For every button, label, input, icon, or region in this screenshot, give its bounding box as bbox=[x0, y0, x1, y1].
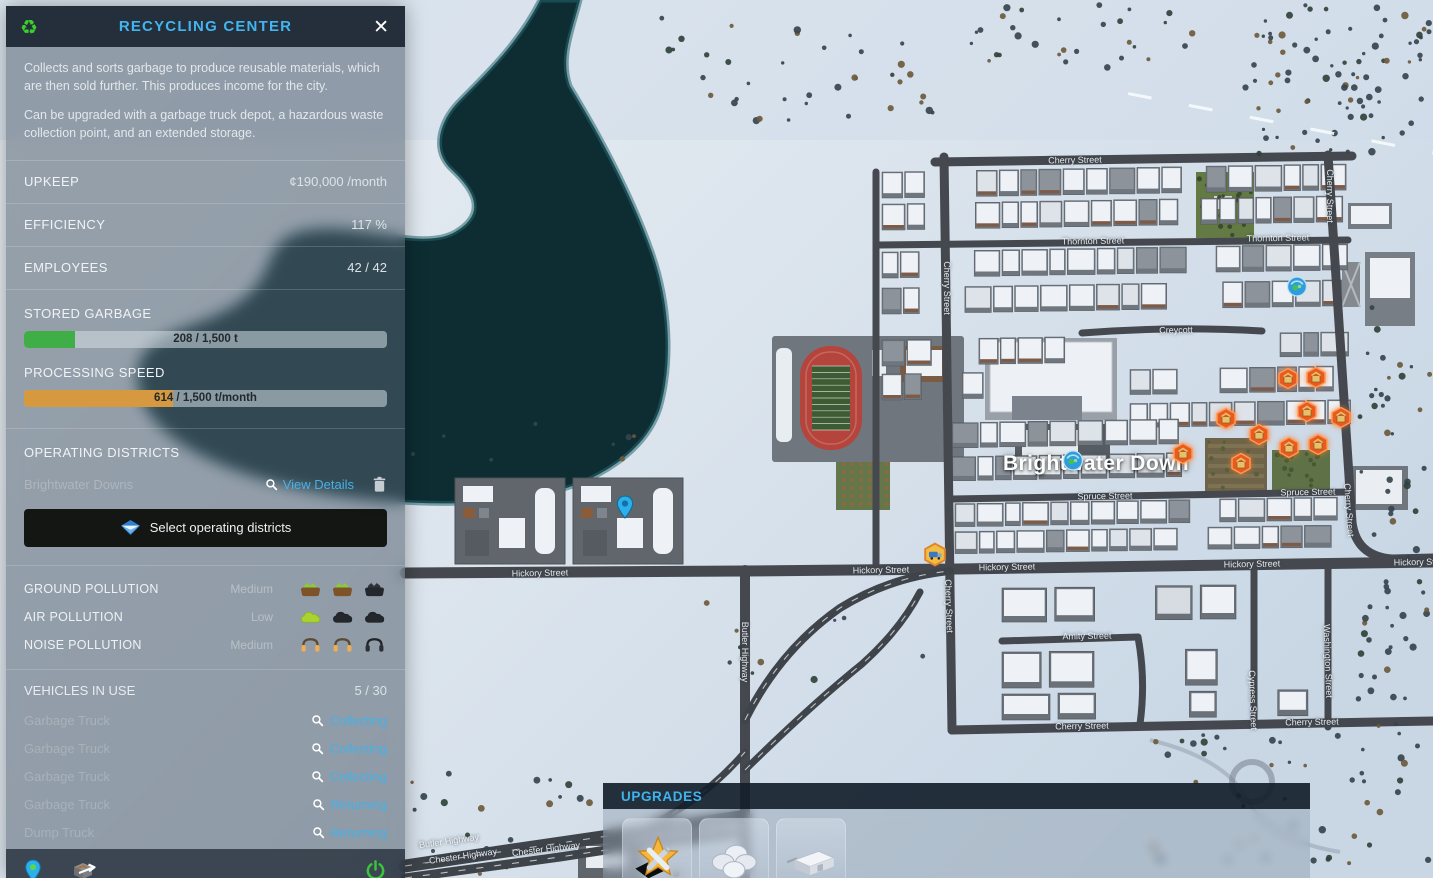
relocate-building-button[interactable] bbox=[70, 859, 97, 878]
stored-garbage-bar: 208 / 1,500 t bbox=[24, 331, 387, 348]
stat-label: UPKEEP bbox=[24, 174, 79, 189]
pollution-level: Medium bbox=[230, 582, 273, 596]
upgrade-tile-storage[interactable] bbox=[776, 818, 846, 878]
pollution-level: Low bbox=[251, 610, 273, 624]
districts-heading: OPERATING DISTRICTS bbox=[24, 445, 387, 460]
storage-section: STORED GARBAGE 208 / 1,500 t PROCESSING … bbox=[6, 289, 405, 428]
stat-row-efficiency: EFFICIENCY 117 % bbox=[6, 203, 405, 246]
vehicle-status: Collecting bbox=[330, 769, 387, 784]
vehicle-name: Garbage Truck bbox=[24, 713, 110, 728]
power-icon bbox=[364, 859, 387, 878]
description-paragraph-1: Collects and sorts garbage to produce re… bbox=[24, 59, 387, 95]
upgrade-tile-domes[interactable] bbox=[699, 818, 769, 878]
view-details-label: View Details bbox=[283, 477, 354, 492]
noise-pollution-row: NOISE POLLUTION Medium bbox=[24, 631, 387, 659]
stored-garbage-label: STORED GARBAGE bbox=[24, 306, 387, 321]
recycling-center-panel: ♻ RECYCLING CENTER ✕ Collects and sorts … bbox=[6, 6, 405, 878]
vehicles-heading: VEHICLES IN USE bbox=[24, 683, 135, 698]
processing-speed-label: PROCESSING SPEED bbox=[24, 365, 387, 380]
vehicle-status: Returning bbox=[331, 825, 387, 840]
magnifier-glyph bbox=[312, 826, 325, 839]
map-pin-icon bbox=[24, 859, 42, 878]
vehicle-row: Garbage Truck Collecting bbox=[6, 707, 405, 735]
stat-value: ¢190,000 /month bbox=[289, 174, 387, 189]
vehicle-name: Garbage Truck bbox=[24, 797, 110, 812]
select-districts-button[interactable]: Select operating districts bbox=[24, 509, 387, 547]
relocate-crate-icon bbox=[70, 859, 97, 878]
vehicle-name: Dump Truck bbox=[24, 825, 94, 840]
locate-building-button[interactable] bbox=[24, 859, 42, 878]
panel-header: ♻ RECYCLING CENTER ✕ bbox=[6, 6, 405, 47]
vehicle-name: Garbage Truck bbox=[24, 741, 110, 756]
pollution-level: Medium bbox=[230, 638, 273, 652]
vehicle-status: Collecting bbox=[330, 741, 387, 756]
air-pollution-icons bbox=[287, 607, 387, 626]
vehicles-count: 5 / 30 bbox=[354, 683, 387, 698]
pollution-label: NOISE POLLUTION bbox=[24, 638, 230, 652]
stat-row-employees: EMPLOYEES 42 / 42 bbox=[6, 246, 405, 289]
vehicle-focus-button[interactable]: Returning bbox=[312, 797, 387, 812]
vehicle-row: Garbage Truck Returning bbox=[6, 791, 405, 819]
vehicle-status: Collecting bbox=[330, 713, 387, 728]
storage-upgrade-icon bbox=[785, 834, 837, 878]
processing-speed-value: 614 / 1,500 t/month bbox=[24, 390, 387, 407]
processing-speed-bar: 614 / 1,500 t/month bbox=[24, 390, 387, 407]
upgrades-body bbox=[603, 809, 1310, 878]
stat-row-upkeep: UPKEEP ¢190,000 /month bbox=[6, 160, 405, 203]
vehicle-focus-button[interactable]: Collecting bbox=[311, 713, 387, 728]
air-pollution-row: AIR POLLUTION Low bbox=[24, 603, 387, 631]
magnifier-icon bbox=[265, 478, 278, 491]
vehicle-focus-button[interactable]: Returning bbox=[312, 825, 387, 840]
noise-pollution-icons bbox=[287, 635, 387, 654]
vehicle-focus-button[interactable]: Collecting bbox=[311, 741, 387, 756]
upgrade-tile-star-tools[interactable] bbox=[622, 818, 692, 878]
vehicle-row: Dump Truck Returning bbox=[6, 819, 405, 847]
remove-district-button[interactable] bbox=[372, 476, 387, 493]
select-districts-label: Select operating districts bbox=[150, 520, 292, 535]
upgrades-header: UPGRADES bbox=[603, 783, 1310, 809]
magnifier-glyph bbox=[311, 742, 324, 755]
vehicle-row: Garbage Truck Collecting bbox=[6, 735, 405, 763]
stat-value: 117 % bbox=[351, 217, 387, 232]
building-description: Collects and sorts garbage to produce re… bbox=[6, 47, 405, 160]
stat-label: EFFICIENCY bbox=[24, 217, 105, 232]
pollution-section: GROUND POLLUTION Medium AIR POLLUTION Lo… bbox=[6, 565, 405, 669]
ground-pollution-icons bbox=[287, 579, 387, 598]
district-name: Brightwater Downs bbox=[24, 477, 265, 492]
magnifier-glyph bbox=[311, 714, 324, 727]
panel-title: RECYCLING CENTER bbox=[6, 18, 405, 35]
vehicles-header: VEHICLES IN USE 5 / 30 bbox=[6, 674, 405, 707]
magnifier-glyph bbox=[265, 478, 278, 491]
magnifier-icon bbox=[311, 714, 324, 727]
operating-districts-section: OPERATING DISTRICTS Brightwater Downs Vi… bbox=[6, 428, 405, 565]
stat-label: EMPLOYEES bbox=[24, 260, 108, 275]
magnifier-icon bbox=[312, 798, 325, 811]
vehicle-row: Garbage Truck Collecting bbox=[6, 763, 405, 791]
upgrades-title: UPGRADES bbox=[621, 789, 702, 804]
stored-garbage-value: 208 / 1,500 t bbox=[24, 331, 387, 348]
panel-footer bbox=[6, 849, 405, 878]
district-icon bbox=[120, 519, 141, 536]
magnifier-icon bbox=[311, 770, 324, 783]
close-icon[interactable]: ✕ bbox=[365, 6, 397, 47]
magnifier-glyph bbox=[311, 770, 324, 783]
trash-icon bbox=[372, 476, 387, 493]
power-toggle-button[interactable] bbox=[364, 859, 387, 878]
vehicle-name: Garbage Truck bbox=[24, 769, 110, 784]
game-screen: Brightwater Down Cherry StreetCherry Str… bbox=[0, 0, 1433, 878]
view-details-button[interactable]: View Details bbox=[265, 477, 354, 492]
magnifier-icon bbox=[312, 826, 325, 839]
vehicle-status: Returning bbox=[331, 797, 387, 812]
description-paragraph-2: Can be upgraded with a garbage truck dep… bbox=[24, 106, 387, 142]
district-row: Brightwater Downs View Details bbox=[24, 476, 387, 493]
magnifier-icon bbox=[311, 742, 324, 755]
star-tools-upgrade-icon bbox=[631, 834, 683, 878]
ground-pollution-row: GROUND POLLUTION Medium bbox=[24, 575, 387, 603]
stat-value: 42 / 42 bbox=[347, 260, 387, 275]
pollution-label: AIR POLLUTION bbox=[24, 610, 251, 624]
vehicle-focus-button[interactable]: Collecting bbox=[311, 769, 387, 784]
upgrades-panel: UPGRADES bbox=[603, 783, 1310, 878]
pollution-label: GROUND POLLUTION bbox=[24, 582, 230, 596]
vehicles-section: VEHICLES IN USE 5 / 30 Garbage Truck Col… bbox=[6, 669, 405, 849]
domes-upgrade-icon bbox=[708, 834, 760, 878]
magnifier-glyph bbox=[312, 798, 325, 811]
recycle-icon: ♻ bbox=[20, 15, 38, 39]
